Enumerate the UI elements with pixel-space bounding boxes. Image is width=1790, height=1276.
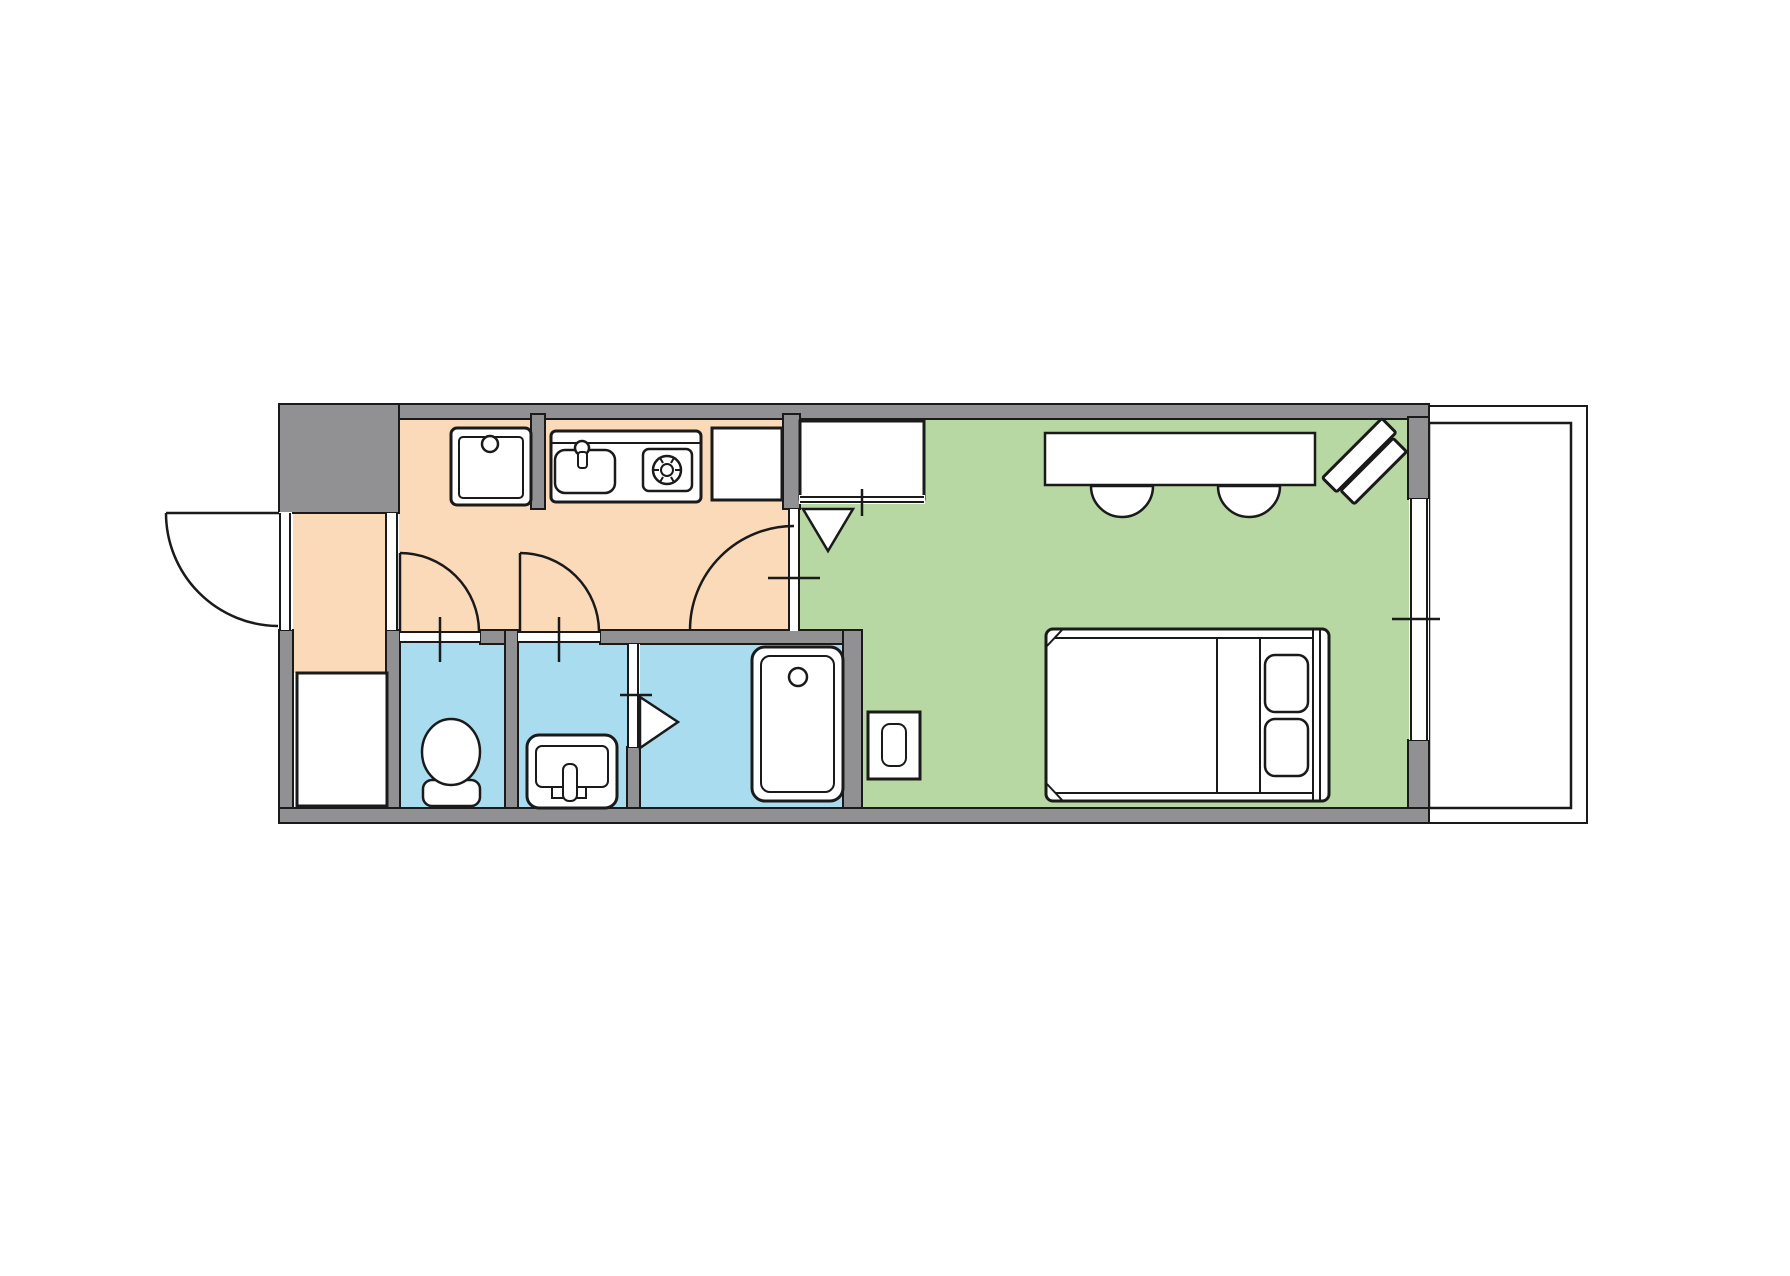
balcony (1429, 406, 1587, 823)
opening-genkan-step (385, 513, 398, 630)
washing-machine-pan (451, 428, 531, 505)
side-cabinet (868, 712, 920, 779)
opening-entry-door (279, 512, 292, 630)
refrigerator-space (712, 428, 782, 500)
shoe-cabinet (297, 673, 387, 806)
bed (1046, 629, 1329, 801)
entry-door-swing (166, 513, 279, 626)
page-background (0, 0, 1790, 1276)
washbasin (527, 735, 617, 808)
stove-burner (643, 449, 692, 491)
bathtub (752, 647, 843, 801)
room-entry-genkan (293, 513, 386, 673)
desk-counter (1045, 433, 1315, 485)
toilet-fixture (422, 719, 480, 806)
floor-plan (0, 0, 1790, 1276)
